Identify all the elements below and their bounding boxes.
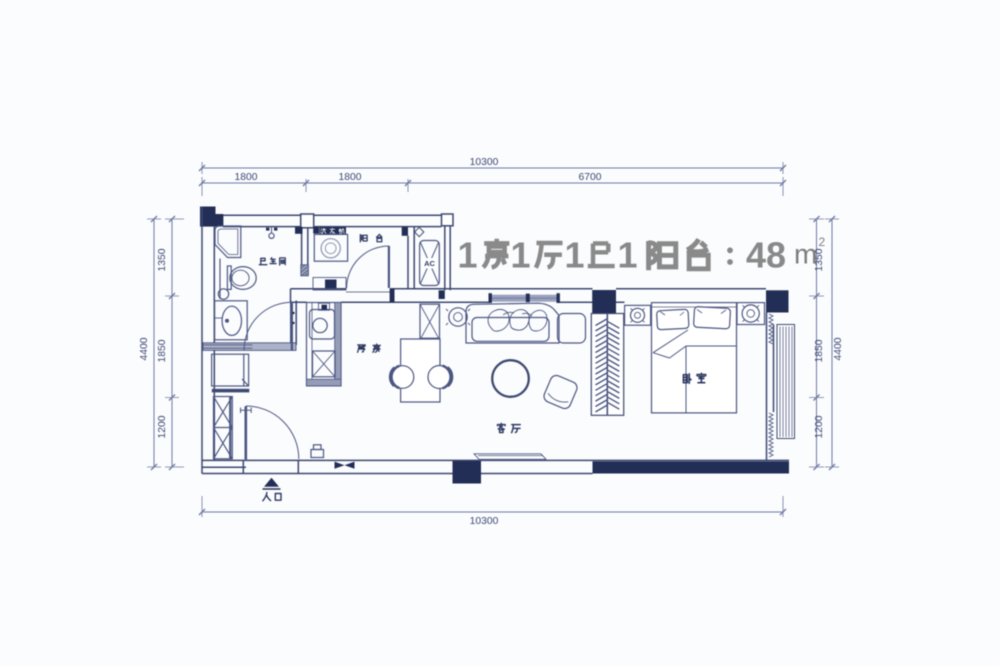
svg-text:10300: 10300 <box>470 516 499 527</box>
svg-text:10300: 10300 <box>470 157 499 168</box>
svg-text:1: 1 <box>565 234 585 275</box>
svg-text:2: 2 <box>819 235 826 249</box>
svg-text:1: 1 <box>511 234 531 275</box>
svg-text:1800: 1800 <box>339 172 362 183</box>
svg-text:1200: 1200 <box>814 415 825 438</box>
svg-text:4400: 4400 <box>139 337 150 360</box>
svg-text:AC: AC <box>424 259 435 268</box>
svg-text:m: m <box>794 239 817 270</box>
svg-text:1: 1 <box>458 234 478 275</box>
svg-text:1350: 1350 <box>157 248 168 271</box>
svg-text:4400: 4400 <box>833 337 844 360</box>
svg-text:1: 1 <box>618 234 638 275</box>
svg-text:1850: 1850 <box>814 339 825 362</box>
svg-text:1850: 1850 <box>157 339 168 362</box>
svg-text:1200: 1200 <box>157 415 168 438</box>
svg-text:1800: 1800 <box>235 172 258 183</box>
svg-text:6700: 6700 <box>579 172 602 183</box>
svg-text:48: 48 <box>746 234 786 275</box>
